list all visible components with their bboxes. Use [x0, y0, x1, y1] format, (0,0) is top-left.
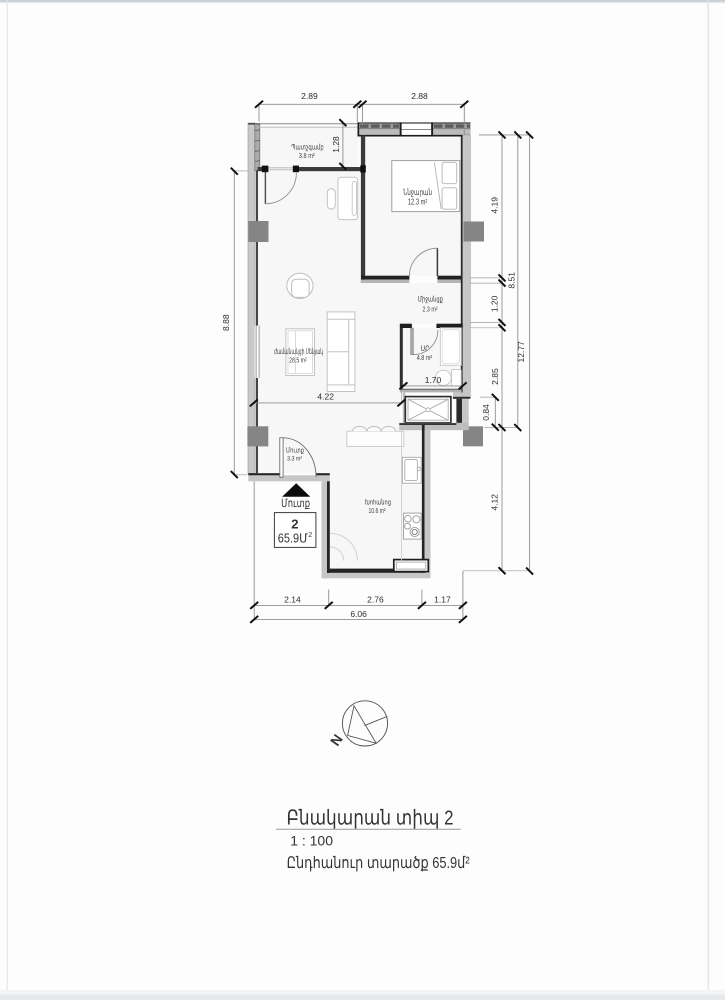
svg-text:8.88: 8.88	[221, 314, 231, 331]
svg-text:ՍՐ: ՍՐ	[421, 344, 431, 353]
svg-text:1.70: 1.70	[425, 375, 442, 385]
svg-text:2.14: 2.14	[284, 594, 301, 604]
svg-text:Ննջարան: Ննջարան	[403, 187, 432, 197]
svg-text:4.12: 4.12	[490, 494, 500, 511]
svg-text:Պատշգամբ: Պատշգամբ	[291, 143, 324, 152]
svg-text:Ընդհանուր տարածք 65.9մ²: Ընդհանուր տարածք 65.9մ²	[287, 855, 471, 872]
svg-text:2.76: 2.76	[367, 594, 384, 604]
svg-text:28.5 m²: 28.5 m²	[289, 356, 307, 365]
svg-text:4.19: 4.19	[490, 197, 500, 214]
svg-text:2: 2	[291, 516, 298, 531]
svg-text:2.89: 2.89	[301, 91, 318, 101]
svg-text:Մուտք: Մուտք	[286, 446, 304, 454]
svg-text:2.3 m²: 2.3 m²	[423, 307, 439, 314]
svg-text:2.88: 2.88	[411, 91, 428, 101]
svg-text:Մուտք: Մուտք	[281, 498, 310, 510]
svg-text:8.51: 8.51	[507, 272, 517, 289]
svg-text:0.84: 0.84	[481, 404, 491, 421]
svg-text:1.28: 1.28	[331, 136, 341, 153]
svg-text:2.85: 2.85	[490, 368, 500, 385]
svg-text:1.20: 1.20	[490, 295, 500, 312]
svg-text:4.22: 4.22	[317, 391, 334, 401]
svg-text:3.8 m²: 3.8 m²	[299, 153, 316, 160]
svg-text:12.77: 12.77	[516, 341, 526, 363]
svg-text:12.3 m²: 12.3 m²	[408, 198, 428, 207]
svg-text:1.17: 1.17	[434, 594, 451, 604]
svg-text:Բնակարան տիպ 2: Բնակարան տիպ 2	[287, 807, 454, 830]
svg-text:65.9Մ: 65.9Մ	[278, 532, 308, 546]
svg-text:Միջանցք: Միջանցք	[418, 295, 443, 304]
svg-text:2: 2	[308, 532, 312, 539]
svg-text:6.06: 6.06	[350, 609, 367, 619]
svg-text:Խոհանոց: Խոհանոց	[365, 498, 391, 507]
svg-text:1 : 100: 1 : 100	[290, 832, 333, 848]
svg-text:3.3 m²: 3.3 m²	[287, 456, 303, 463]
svg-text:4.8 m²: 4.8 m²	[417, 355, 433, 362]
svg-text:10.6 m²: 10.6 m²	[369, 508, 386, 515]
